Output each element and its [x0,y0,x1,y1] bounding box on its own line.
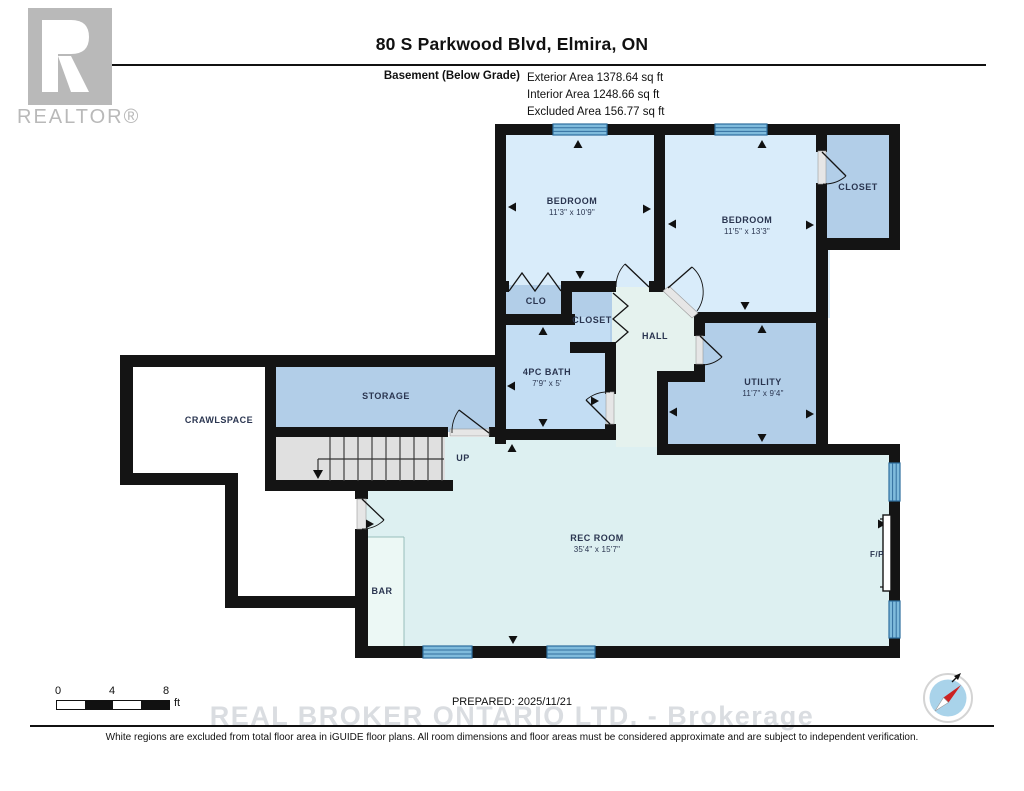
window-bottom-1 [423,646,472,658]
rec-door-strip [357,499,366,529]
room-label-rec: REC ROOM 35'4" x 15'7" [537,533,657,555]
floorplan-page: 80 S Parkwood Blvd, Elmira, ON Basement … [0,0,1024,791]
room-label-bedroom1: BEDROOM 11'3" x 10'9" [512,196,632,218]
room-label-bar: BAR [322,586,442,597]
window-top-1 [553,124,607,135]
room-label-fireplace: F/P [847,549,907,560]
window-right-1 [889,463,900,501]
room-label-crawlspace: CRAWLSPACE [159,415,279,426]
window-right-2 [889,601,900,638]
storage-door-strip [450,429,489,436]
footer-divider [30,725,994,727]
bath-door-strip [606,392,614,424]
room-label-clo: CLO [476,296,596,307]
room-label-storage: STORAGE [326,391,446,402]
window-top-2 [715,124,767,135]
realtor-logo [28,8,112,105]
room-label-hall: HALL [595,331,715,342]
room-label-closet-mid: CLOSET [532,315,652,326]
room-label-utility: UTILITY 11'7" x 9'4" [703,377,823,399]
window-bottom-2 [547,646,595,658]
room-label-up: UP [433,453,493,464]
room-label-bedroom2: BEDROOM 11'5" x 13'3" [687,215,807,237]
room-label-closet-tr: CLOSET [798,182,918,193]
floorplan-drawing [0,0,1024,791]
closet-tr-door-strip [818,151,826,184]
disclaimer-text: White regions are excluded from total fl… [0,732,1024,743]
prepared-date: PREPARED: 2025/11/21 [0,696,1024,708]
room-label-bath: 4PC BATH 7'9" x 5' [487,367,607,389]
